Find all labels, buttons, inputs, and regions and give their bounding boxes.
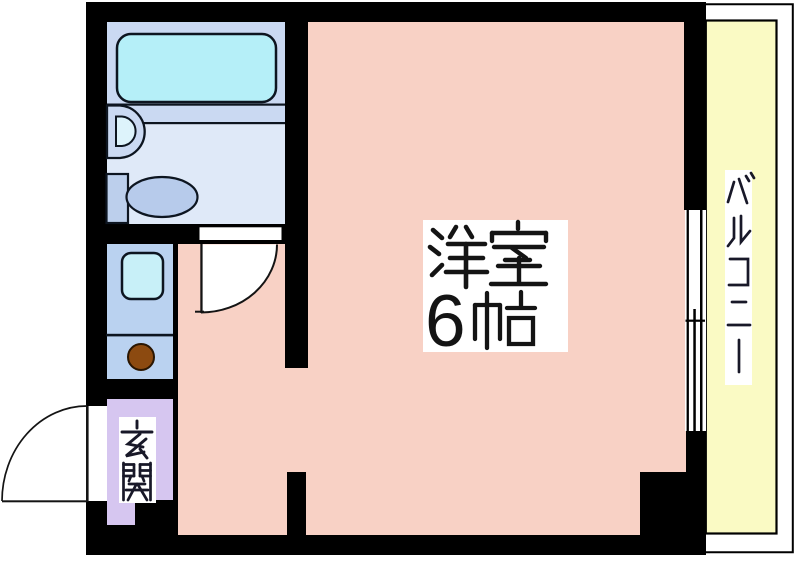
svg-text:6: 6 <box>425 281 466 362</box>
